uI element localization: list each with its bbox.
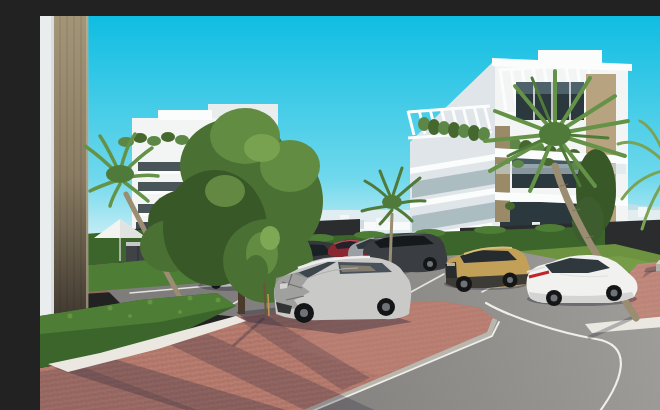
foreground-building-corner — [40, 16, 89, 352]
main-building-roof-step — [538, 50, 602, 64]
tan-suv-headlight — [447, 263, 455, 266]
render-canvas — [40, 16, 660, 410]
corner-stone-pillar — [54, 16, 88, 336]
render-image: Sunny 3D architectural rendering of a mo… — [40, 16, 660, 410]
